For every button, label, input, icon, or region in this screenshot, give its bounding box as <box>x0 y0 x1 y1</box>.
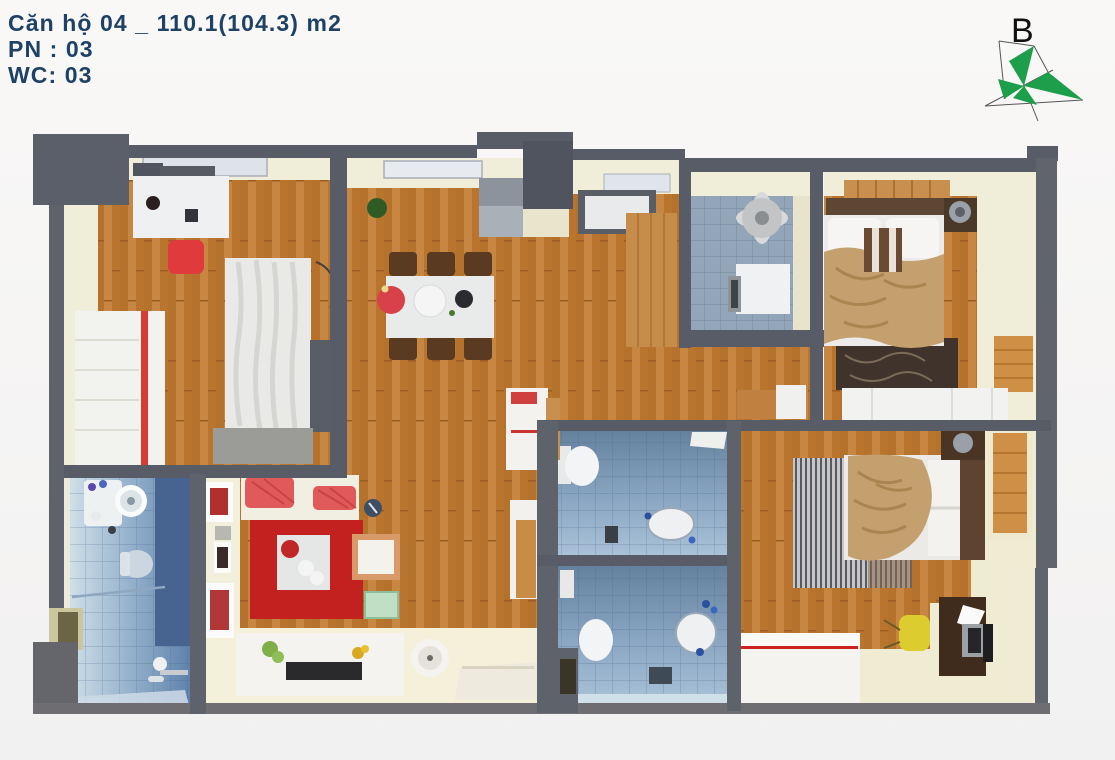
svg-text:WC: 03: WC: 03 <box>8 62 93 88</box>
svg-text:PN : 03: PN : 03 <box>8 36 94 62</box>
svg-text:B: B <box>1011 12 1034 50</box>
svg-text:Căn hộ 04 _ 110.1(104.3) m2: Căn hộ 04 _ 110.1(104.3) m2 <box>8 10 342 36</box>
